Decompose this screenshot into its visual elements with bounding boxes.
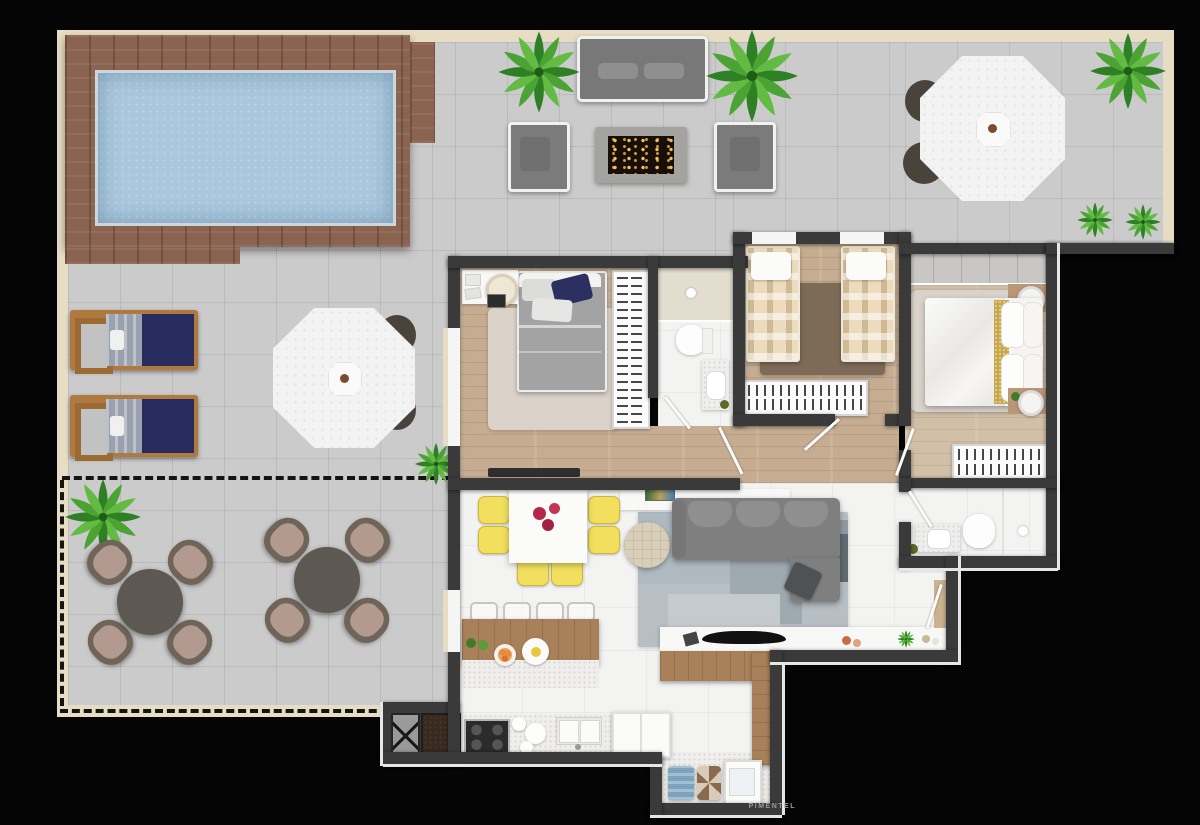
swimming-pool xyxy=(95,70,396,226)
pillow xyxy=(1023,302,1043,348)
sink-basin xyxy=(927,529,951,549)
master-shower-head xyxy=(1018,526,1028,536)
sun-lounger xyxy=(70,310,198,370)
laundry-tank xyxy=(724,760,762,806)
decor-cups xyxy=(922,635,930,643)
wall-right xyxy=(1046,243,1057,568)
sofa-cushion xyxy=(644,63,684,79)
wall-bedroom2-bottom-b xyxy=(885,414,899,426)
dresser-items xyxy=(748,399,862,410)
plate xyxy=(512,717,526,731)
pillow xyxy=(531,298,572,323)
window-kitchen xyxy=(448,590,460,652)
duvet xyxy=(925,298,1005,406)
wall-art xyxy=(645,489,675,501)
fire-pit-table xyxy=(595,127,687,183)
wall-kitchen-bottom xyxy=(383,752,662,764)
pillow xyxy=(1001,302,1025,348)
bedroom1-tv-panel xyxy=(488,468,580,477)
floor-plan: PIMENTEL xyxy=(0,0,1200,825)
outdoor-armchair-right xyxy=(714,122,776,192)
window-bedroom2 xyxy=(752,232,796,244)
wall-bath1-right-step xyxy=(733,232,745,426)
lounger-pillow xyxy=(110,330,124,350)
flower-centerpiece xyxy=(549,503,560,514)
wall-kitchen-right xyxy=(770,650,782,815)
window-bedroom1 xyxy=(448,328,460,446)
living-pouf xyxy=(624,522,670,568)
fire-pit-coals xyxy=(608,136,674,174)
sofa-back-cushion xyxy=(688,501,732,527)
wall-masterbath-bottom xyxy=(899,556,1057,568)
wall-terrace-edge-ne xyxy=(1046,243,1174,254)
lounger-pillow xyxy=(110,416,124,436)
exterior-outline xyxy=(958,556,961,664)
wall-master-left xyxy=(899,232,911,426)
outdoor-armchair-left xyxy=(508,122,570,192)
dining-chair xyxy=(478,496,510,524)
wicker-basket xyxy=(697,766,721,800)
master-toilet xyxy=(963,514,995,548)
exterior-outline xyxy=(782,662,785,815)
wall-living-right xyxy=(946,556,958,662)
exterior-outline xyxy=(380,702,383,766)
shower-head xyxy=(686,288,696,298)
terrace-round-table xyxy=(294,547,360,613)
cooktop xyxy=(464,719,510,755)
window-sill xyxy=(443,328,448,446)
master-wardrobe xyxy=(952,444,1050,482)
lounger-cushion xyxy=(142,314,194,366)
double-sink xyxy=(556,717,602,745)
island-greens xyxy=(478,640,488,650)
master-built-in-closet xyxy=(905,253,1046,285)
window-bedroom2 xyxy=(840,232,884,244)
decor-cups xyxy=(853,639,861,647)
sofa-cushion xyxy=(598,63,638,79)
sofa-back-cushion xyxy=(784,501,828,527)
tangerines xyxy=(498,648,512,662)
shrub-icon xyxy=(1120,202,1166,242)
desk-papers xyxy=(464,287,481,300)
hanger-rail xyxy=(631,276,642,423)
pool-deck-extension-right xyxy=(410,42,435,143)
sink-bowl xyxy=(580,720,600,743)
plant-icon xyxy=(896,629,916,649)
sink-basin xyxy=(706,371,726,400)
flower-centerpiece xyxy=(542,519,554,531)
pool-deck-extension-bottom xyxy=(65,247,240,264)
wall-corridor-bottom xyxy=(448,478,740,490)
dresser-items xyxy=(748,385,862,396)
terrace-round-table xyxy=(117,569,183,635)
twin-bed-left xyxy=(746,246,800,362)
fruit-plate xyxy=(494,644,516,666)
serving-bowl xyxy=(522,638,549,665)
watermark: PIMENTEL xyxy=(736,803,796,814)
laundry-towels xyxy=(668,766,694,800)
dining-chair xyxy=(588,496,620,524)
plant-icon xyxy=(1085,28,1171,114)
fridge-divider xyxy=(640,714,642,752)
island-greens xyxy=(466,638,476,648)
lounger-cushion xyxy=(142,399,194,453)
exterior-outline xyxy=(1057,243,1060,570)
living-sofa xyxy=(672,498,840,560)
sofa-back-cushion xyxy=(736,501,780,527)
wall-bath1-left xyxy=(648,256,658,398)
bedroom1-wardrobe xyxy=(612,270,650,429)
exterior-outline xyxy=(650,815,782,818)
parasol-umbrella xyxy=(273,308,415,448)
parasol-umbrella xyxy=(920,56,1065,201)
twin-bed-right xyxy=(841,246,895,362)
sink-bowl xyxy=(559,720,579,743)
exterior-outline xyxy=(383,764,662,767)
plant-icon xyxy=(700,24,804,128)
shower-glass-line xyxy=(1002,490,1004,554)
bathroom1-plant-dot xyxy=(720,400,729,409)
exterior-outline xyxy=(770,662,961,665)
pillow xyxy=(846,252,886,280)
bowl-contents xyxy=(531,647,541,657)
pillow xyxy=(751,252,791,280)
dining-chair xyxy=(588,526,620,554)
tank-basin xyxy=(729,768,755,796)
dining-chair xyxy=(478,526,510,554)
hanger-rail xyxy=(958,449,1044,460)
armchair-cushion xyxy=(730,137,760,171)
desk-papers xyxy=(465,274,481,286)
window-sill xyxy=(443,590,448,652)
decor-cups xyxy=(842,636,851,645)
sofa-armrest xyxy=(672,500,686,558)
hanger-rail xyxy=(617,276,628,423)
blanket-fold xyxy=(519,325,601,328)
flower-centerpiece xyxy=(533,507,546,520)
wall-master-bottom xyxy=(899,478,1057,488)
armchair-cushion xyxy=(520,137,550,171)
speaker xyxy=(683,631,700,646)
wall-living-bottom xyxy=(770,650,958,662)
faucet xyxy=(575,744,581,750)
parasol-pole xyxy=(988,124,997,133)
decor-cups xyxy=(932,638,939,645)
toilet-tank xyxy=(702,328,713,354)
blanket-fold xyxy=(519,351,601,353)
shrub-icon xyxy=(1073,200,1117,240)
sun-lounger xyxy=(70,395,198,457)
plant-icon xyxy=(493,26,585,118)
parasol-pole xyxy=(340,374,349,383)
outdoor-sofa xyxy=(577,36,708,102)
bedroom2-dresser xyxy=(742,380,868,416)
bedroom1-picture xyxy=(487,294,506,308)
tv xyxy=(702,631,786,644)
wall-bedroom2-bottom-a xyxy=(733,414,835,426)
nightstand-lamp xyxy=(1018,390,1044,416)
media-counter xyxy=(660,627,946,651)
master-vanity xyxy=(916,524,960,552)
wall-bedroom1-top xyxy=(448,256,748,268)
exterior-outline xyxy=(899,568,1058,571)
bedroom1-bed xyxy=(517,271,607,392)
hanger-rail xyxy=(958,464,1044,475)
dining-table xyxy=(509,489,587,563)
